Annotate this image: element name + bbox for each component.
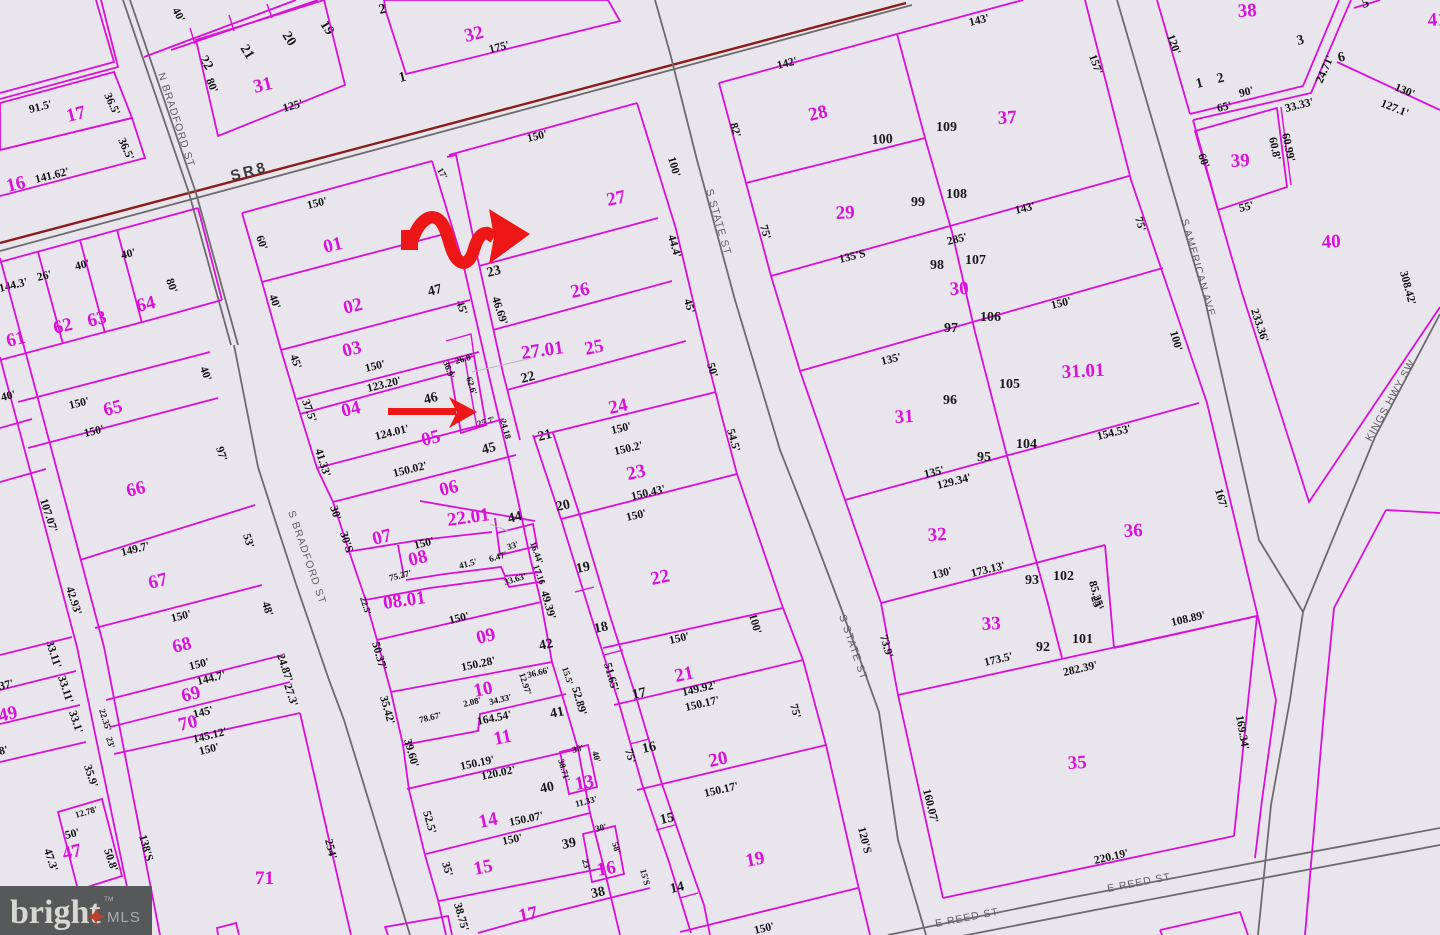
svg-text:96: 96 <box>943 393 957 408</box>
svg-text:35: 35 <box>1067 752 1087 774</box>
svg-text:29: 29 <box>835 202 855 224</box>
svg-text:98: 98 <box>930 258 944 273</box>
svg-text:101: 101 <box>1072 632 1093 647</box>
svg-text:36: 36 <box>1123 520 1143 542</box>
svg-text:92: 92 <box>1036 640 1050 655</box>
svg-text:71: 71 <box>255 868 274 889</box>
svg-text:37: 37 <box>997 107 1018 129</box>
svg-text:32: 32 <box>927 524 947 546</box>
svg-text:95: 95 <box>977 450 991 465</box>
svg-text:MLS: MLS <box>107 909 141 926</box>
svg-text:TM: TM <box>104 896 113 903</box>
svg-text:bright: bright <box>10 894 101 931</box>
svg-text:107: 107 <box>965 253 986 268</box>
svg-text:97: 97 <box>944 321 958 336</box>
svg-text:31.01: 31.01 <box>1061 360 1105 383</box>
svg-text:105: 105 <box>999 377 1020 392</box>
svg-text:31: 31 <box>894 406 914 428</box>
svg-text:38: 38 <box>1237 0 1257 22</box>
svg-text:13: 13 <box>573 771 595 795</box>
svg-text:99: 99 <box>911 195 925 210</box>
svg-text:100: 100 <box>871 132 893 148</box>
svg-text:30: 30 <box>949 278 969 300</box>
svg-text:108: 108 <box>946 187 967 202</box>
svg-text:93: 93 <box>1025 573 1039 588</box>
svg-text:33: 33 <box>981 613 1001 635</box>
svg-text:109: 109 <box>936 120 957 135</box>
svg-text:39: 39 <box>1230 150 1250 172</box>
svg-text:40: 40 <box>1321 231 1341 253</box>
svg-text:16: 16 <box>595 857 617 881</box>
svg-text:41: 41 <box>1427 9 1440 31</box>
svg-text:104: 104 <box>1016 437 1037 452</box>
svg-text:102: 102 <box>1053 569 1074 584</box>
svg-text:106: 106 <box>980 310 1001 325</box>
